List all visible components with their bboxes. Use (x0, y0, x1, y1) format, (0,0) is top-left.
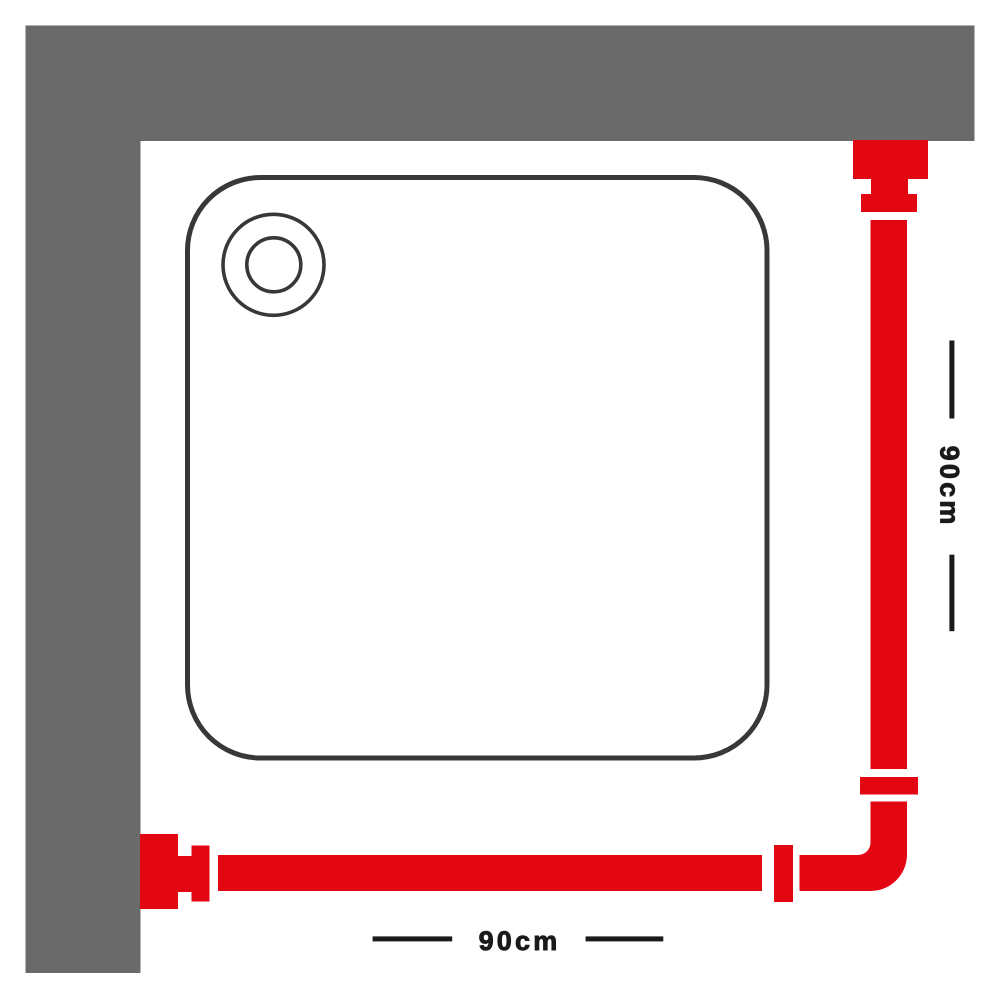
svg-text:90cm: 90cm (934, 446, 964, 528)
svg-text:90cm: 90cm (479, 926, 561, 956)
